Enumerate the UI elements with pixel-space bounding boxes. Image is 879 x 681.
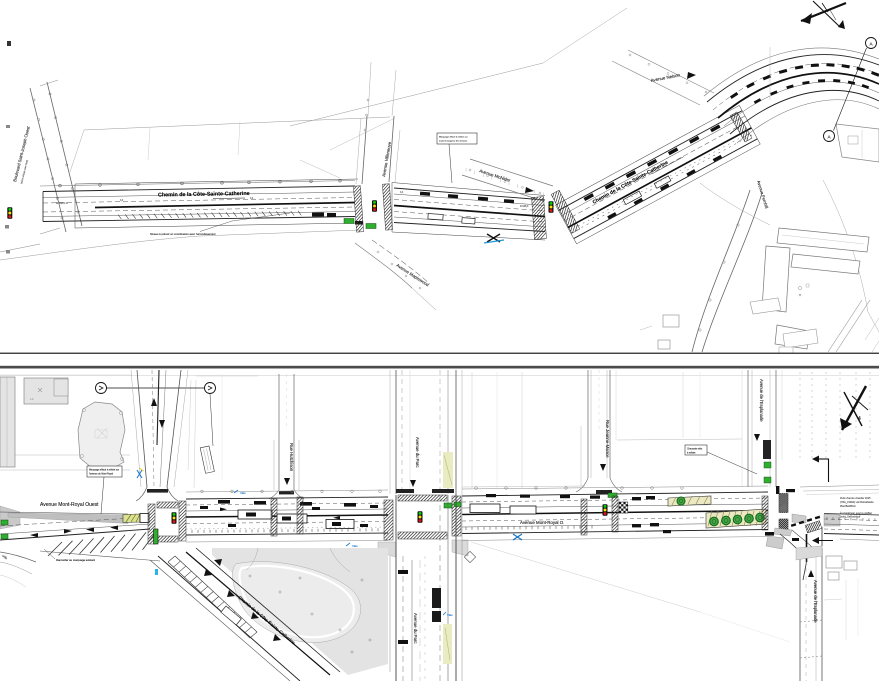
svg-text:4: 4	[858, 416, 861, 422]
svg-text:Plan/BoM/Dét: Plan/BoM/Dét	[840, 505, 856, 508]
svg-text:Avenue de l'Esplanade: Avenue de l'Esplanade	[813, 580, 818, 623]
svg-text:R 625,4: R 625,4	[520, 205, 529, 208]
svg-text:Avenue Mont-Royal O.: Avenue Mont-Royal O.	[520, 520, 564, 525]
svg-text:Raccorder au marquage existant: Raccorder au marquage existant	[56, 558, 95, 562]
svg-text:Chaussée vélo: Chaussée vélo	[687, 449, 703, 451]
svg-text:Rue Jeanne-Mance: Rue Jeanne-Mance	[605, 420, 610, 458]
svg-text:Marquage effacé à refaire sur: Marquage effacé à refaire sur	[439, 136, 468, 139]
svg-text:à refaire: à refaire	[687, 452, 696, 455]
svg-text:(voir)_SaRoch/pdf: (voir)_SaRoch/pdf	[840, 516, 860, 519]
svg-text:(TBA_15094) voir BoCathédre: (TBA_15094) voir BoCathédre	[840, 501, 874, 504]
svg-text:l'avenue du Mont-Royal: l'avenue du Mont-Royal	[89, 473, 114, 476]
svg-text:Vélo: Vélo	[240, 491, 246, 495]
svg-text:toute la longueur des travaux: toute la longueur des travaux	[439, 140, 468, 143]
svg-text:M 266.0 m: M 266.0 m	[56, 202, 68, 205]
svg-text:Avenue de l'Esplanade: Avenue de l'Esplanade	[759, 379, 764, 422]
svg-text:Marquage effacé à refaire sur: Marquage effacé à refaire sur	[89, 469, 119, 472]
svg-text:Niveau à prévoir en coordinati: Niveau à prévoir en coordination avec l'…	[150, 232, 216, 236]
svg-text:Rue Hutchison: Rue Hutchison	[289, 443, 294, 472]
svg-text:Puits d'accès chantier 2025: Puits d'accès chantier 2025	[840, 497, 871, 500]
svg-text:Avenue du Parc: Avenue du Parc	[415, 437, 420, 468]
svg-text:Avenue du Parc: Avenue du Parc	[413, 613, 418, 644]
svg-text:Avenue Mont-Royal Ouest: Avenue Mont-Royal Ouest	[40, 502, 99, 508]
svg-text:Vélo: Vélo	[352, 544, 358, 548]
svg-text:Vélo: Vélo	[447, 613, 453, 617]
